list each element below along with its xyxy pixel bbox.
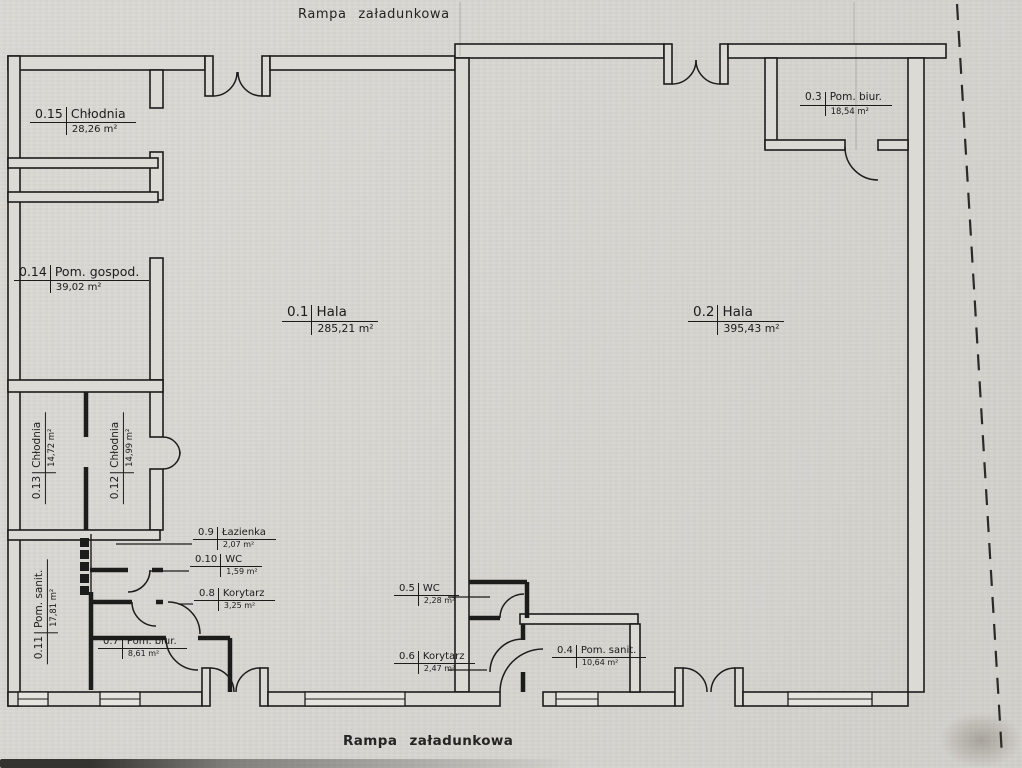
room-label-0-5: 0.5 WC 2,28 m² (394, 583, 459, 606)
room-name: Łazienka (217, 527, 276, 540)
walls-hollow (8, 44, 946, 706)
room-name: Hala (311, 305, 377, 322)
hatched-wall (80, 534, 91, 595)
room-name: WC (418, 583, 459, 596)
room-name: Chłodnia (66, 107, 136, 123)
room-name: Pom. sanit. (34, 560, 48, 633)
room-label-0-7: 0.7 Pom. biur. 8,61 m² (98, 636, 187, 659)
ramp-caption-top: Rampa załadunkowa (298, 7, 450, 22)
room-number: 0.4 (552, 645, 576, 658)
room-name: Pom. sanit. (576, 645, 646, 658)
room-area: 18,54 m² (825, 106, 892, 116)
room-name: Pom. biur. (122, 636, 187, 649)
room-area: 2,07 m² (217, 540, 276, 550)
room-name: Pom. gospod. (50, 265, 149, 281)
room-number: 0.3 (800, 92, 825, 106)
boundary-dashed-line (957, 4, 1002, 756)
paper-edge-shadow (0, 759, 575, 768)
room-area: 17,81 m² (48, 560, 58, 633)
room-area: 14,72 m² (46, 412, 56, 473)
room-area: 10,64 m² (576, 658, 646, 668)
room-name: Korytarz (418, 651, 475, 664)
room-label-0-2: 0.2 Hala 395,43 m² (688, 305, 784, 335)
room-label-0-6: 0.6 Korytarz 2,47 m² (394, 651, 475, 674)
paper-fold-lines (460, 2, 856, 150)
room-number: 0.7 (98, 636, 122, 649)
room-area: 285,21 m² (311, 322, 377, 335)
room-name: Hala (717, 305, 783, 322)
room-number: 0.9 (193, 527, 217, 540)
room-label-0-9: 0.9 Łazienka 2,07 m² (193, 527, 276, 550)
room-label-0-11: 0.11 Pom. sanit. 17,81 m² (34, 560, 58, 665)
room-area: 3,25 m² (218, 601, 275, 611)
room-area: 2,28 m² (418, 596, 459, 606)
room-number: 0.11 (34, 633, 48, 664)
room-label-0-3: 0.3 Pom. biur. 18,54 m² (800, 92, 892, 116)
ramp-caption-bottom: Rampa załadunkowa (343, 733, 513, 749)
room-label-0-4: 0.4 Pom. sanit. 10,64 m² (552, 645, 646, 668)
room-label-0-13: 0.13 Chłodnia 14,72 m² (32, 412, 56, 504)
room-name: Chłodnia (110, 412, 124, 473)
room-label-0-15: 0.15 Chłodnia 28,26 m² (30, 107, 136, 135)
room-number: 0.14 (14, 265, 50, 281)
room-label-0-12: 0.12 Chłodnia 14,99 m² (110, 412, 134, 504)
room-number: 0.6 (394, 651, 418, 664)
room-area: 1,59 m² (220, 567, 261, 577)
room-area: 395,43 m² (717, 322, 783, 335)
room-area: 14,99 m² (124, 412, 134, 473)
room-number: 0.12 (110, 473, 124, 504)
room-name: Korytarz (218, 588, 275, 601)
room-number: 0.2 (688, 305, 717, 322)
room-label-0-8: 0.8 Korytarz 3,25 m² (194, 588, 275, 611)
room-number: 0.1 (282, 305, 311, 322)
room-label-0-1: 0.1 Hala 285,21 m² (282, 305, 378, 335)
room-number: 0.10 (190, 554, 220, 567)
room-area: 28,26 m² (66, 123, 136, 135)
room-area: 2,47 m² (418, 664, 475, 674)
room-area: 39,02 m² (50, 281, 149, 293)
room-label-0-10: 0.10 WC 1,59 m² (190, 554, 262, 577)
room-name: WC (220, 554, 261, 567)
photo-smudge (940, 712, 1022, 768)
room-label-0-14: 0.14 Pom. gospod. 39,02 m² (14, 265, 149, 293)
room-name: Chłodnia (32, 412, 46, 473)
room-number: 0.8 (194, 588, 218, 601)
floorplan-page: Rampa załadunkowa Rampa załadunkowa 0.15… (0, 0, 1022, 768)
room-name: Pom. biur. (825, 92, 892, 106)
room-number: 0.15 (30, 107, 66, 123)
room-number: 0.5 (394, 583, 418, 596)
room-area: 8,61 m² (122, 649, 187, 659)
room-number: 0.13 (32, 473, 46, 504)
